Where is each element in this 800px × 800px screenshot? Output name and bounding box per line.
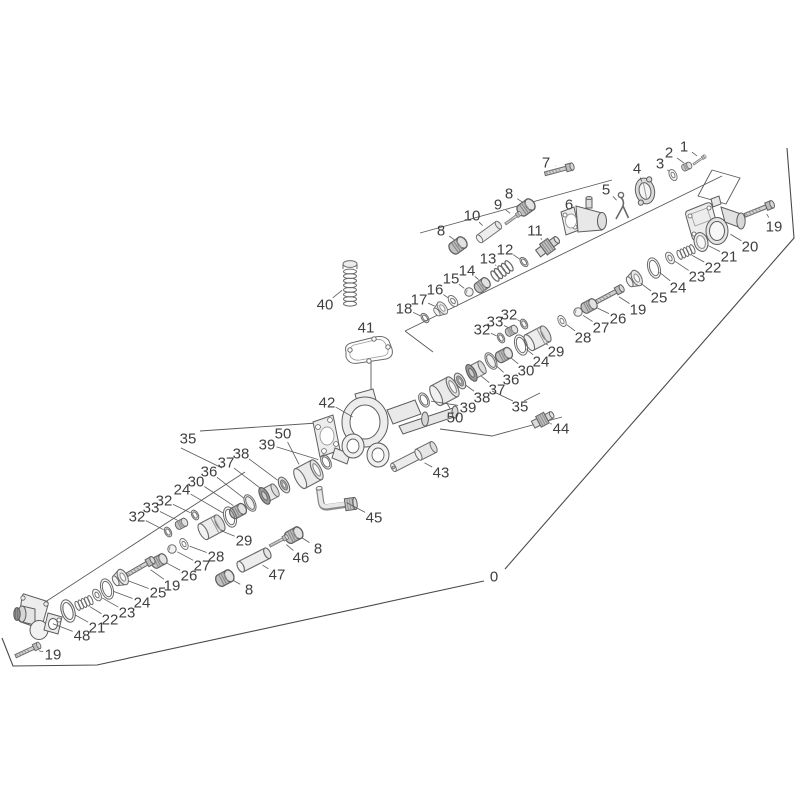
part-label-12: 12 — [497, 241, 514, 258]
part-47-glyph — [235, 547, 272, 574]
part-label-35: 35 — [180, 430, 197, 447]
part-label-24: 24 — [134, 594, 151, 611]
leader-line — [677, 158, 684, 163]
part-label-47: 47 — [269, 566, 286, 583]
part-label-19: 19 — [630, 301, 647, 318]
part-label-25: 25 — [150, 584, 167, 601]
part-label-41: 41 — [358, 319, 375, 336]
part-12-glyph — [518, 256, 529, 268]
part-19-glyph — [14, 642, 42, 660]
part-label-23: 23 — [119, 604, 136, 621]
diagram-labels-layer: 0422048671234519212223242519262728323332… — [39, 138, 783, 663]
part-label-21: 21 — [721, 248, 738, 265]
part-label-19: 19 — [766, 218, 783, 235]
part-label-30: 30 — [518, 362, 535, 379]
leader-line — [447, 403, 450, 409]
part-19-glyph — [594, 284, 625, 306]
part-label-32: 32 — [474, 321, 491, 338]
part-45-glyph — [316, 482, 358, 515]
part-label-50: 50 — [447, 409, 464, 426]
leader-line — [413, 312, 420, 316]
part-label-8: 8 — [314, 540, 322, 557]
part-label-42: 42 — [319, 394, 336, 411]
leader-line — [424, 463, 432, 467]
leader-line — [513, 255, 520, 260]
part-32-glyph — [163, 526, 174, 538]
leader-line — [177, 552, 193, 560]
part-label-7: 7 — [542, 154, 550, 171]
part-2-glyph — [681, 161, 693, 172]
part-3-glyph — [667, 168, 679, 182]
part-label-40: 40 — [317, 296, 334, 313]
part-label-25: 25 — [651, 289, 668, 306]
part-23-glyph — [664, 251, 677, 266]
part-label-24: 24 — [533, 353, 550, 370]
part-8-glyph — [447, 235, 469, 256]
construction-line — [200, 423, 317, 431]
leader-line — [263, 565, 269, 569]
leader-line — [491, 333, 496, 336]
leader-line — [146, 521, 164, 530]
leader-line — [233, 580, 240, 584]
part-1-glyph — [692, 154, 706, 166]
part-label-28: 28 — [575, 329, 592, 346]
leader-line — [517, 199, 522, 202]
part-27-glyph — [574, 308, 582, 316]
leader-line — [449, 236, 454, 240]
part-label-14: 14 — [459, 262, 476, 279]
part-label-9: 9 — [494, 196, 502, 213]
part-label-22: 22 — [705, 259, 722, 276]
leader-line — [234, 468, 261, 488]
leader-line — [659, 272, 670, 280]
part-label-3: 3 — [656, 155, 664, 172]
part-label-37: 37 — [218, 454, 235, 471]
part-label-11: 11 — [527, 222, 543, 239]
leader-line — [333, 290, 342, 298]
leader-line — [506, 210, 510, 213]
leader-line — [692, 152, 697, 156]
leader-line — [114, 591, 133, 598]
part-label-4: 4 — [633, 160, 641, 177]
part-22-glyph — [74, 595, 94, 611]
part-8-glyph — [214, 568, 236, 588]
part-40-glyph — [343, 261, 357, 307]
part-24-glyph — [645, 256, 663, 280]
leader-line — [517, 320, 520, 322]
part-4-glyph — [633, 176, 657, 206]
leader-line — [128, 581, 148, 589]
leader-line — [160, 511, 178, 520]
leader-line — [151, 570, 164, 580]
part-27-glyph — [168, 545, 176, 553]
construction-line — [405, 331, 433, 352]
part-29-glyph — [196, 513, 227, 541]
leader-line — [692, 255, 704, 262]
part-label-43: 43 — [433, 464, 450, 481]
leader-line — [597, 308, 609, 314]
leader-line — [459, 284, 464, 288]
part-label-23: 23 — [689, 268, 706, 285]
part-label-37: 37 — [489, 381, 506, 398]
part-label-18: 18 — [396, 300, 413, 317]
part-19-glyph — [743, 200, 775, 219]
diagram-parts-layer — [14, 154, 776, 659]
diagram-canvas: 0422048671234519212223242519262728323332… — [0, 0, 800, 800]
part-label-6: 6 — [565, 196, 573, 213]
part-28-glyph — [556, 314, 568, 328]
part-32-glyph — [496, 332, 507, 344]
part-label-26: 26 — [181, 567, 198, 584]
part-label-27: 27 — [593, 319, 610, 336]
part-label-50: 50 — [275, 425, 292, 442]
leader-line — [39, 651, 43, 652]
part-label-32: 32 — [129, 508, 146, 525]
part-label-10: 10 — [464, 207, 481, 224]
part-label-35: 35 — [512, 398, 529, 415]
part-39-glyph — [416, 391, 431, 409]
part-label-24: 24 — [174, 481, 191, 498]
part-label-29: 29 — [236, 532, 253, 549]
part-label-21: 21 — [89, 619, 106, 636]
part-25-glyph — [623, 268, 644, 290]
part-48-glyph — [14, 594, 62, 640]
part-label-45: 45 — [366, 509, 383, 526]
part-41-glyph — [346, 337, 393, 364]
part-label-44: 44 — [553, 420, 570, 437]
part-37-glyph — [256, 481, 281, 506]
part-50-glyph — [291, 458, 326, 490]
leader-line — [277, 447, 319, 460]
part-label-8: 8 — [505, 185, 513, 202]
assembly-boundary-outline — [2, 581, 484, 666]
leader-line — [619, 297, 630, 304]
part-label-39: 39 — [259, 436, 276, 453]
part-43-glyph — [389, 440, 439, 473]
part-33-glyph — [174, 517, 189, 530]
part-label-5: 5 — [602, 181, 610, 198]
part-label-29: 29 — [548, 343, 565, 360]
part-label-1: 1 — [680, 138, 688, 155]
leader-line — [708, 246, 720, 252]
part-22-glyph — [676, 244, 696, 260]
leader-line — [75, 615, 88, 622]
part-5-glyph — [616, 192, 629, 219]
leader-line — [443, 295, 448, 298]
leader-line — [730, 234, 741, 241]
leader-line — [190, 546, 207, 552]
part-label-26: 26 — [610, 310, 627, 327]
leader-line — [641, 283, 651, 291]
leader-line — [613, 196, 617, 200]
part-17-glyph — [431, 300, 450, 319]
leader-line — [302, 538, 310, 543]
part-14-glyph — [472, 276, 492, 294]
leader-line — [90, 607, 102, 614]
leader-line — [221, 531, 234, 536]
part-18-glyph — [419, 312, 430, 324]
part-label-16: 16 — [427, 281, 444, 298]
part-label-0: 0 — [490, 568, 498, 585]
part-label-20: 20 — [742, 238, 759, 255]
leader-line — [767, 214, 769, 217]
part-label-8: 8 — [437, 222, 445, 239]
part-label-13: 13 — [480, 250, 497, 267]
leader-line — [550, 423, 551, 424]
part-19-glyph — [125, 556, 156, 578]
leader-line — [583, 315, 593, 321]
leader-line — [675, 261, 689, 270]
part-16-glyph — [446, 294, 460, 309]
leader-line — [173, 504, 190, 512]
part-9-glyph — [504, 211, 522, 226]
part-label-15: 15 — [443, 270, 460, 287]
exploded-parts-diagram: 0422048671234519212223242519262728323332… — [0, 0, 800, 800]
part-28-glyph — [178, 537, 190, 551]
leader-line — [167, 563, 180, 570]
part-32-glyph — [519, 318, 530, 330]
part-label-17: 17 — [411, 291, 428, 308]
part-label-2: 2 — [665, 144, 673, 161]
leader-line — [249, 459, 278, 480]
part-label-8: 8 — [245, 581, 253, 598]
part-label-38: 38 — [233, 445, 250, 462]
part-32-glyph — [190, 509, 201, 521]
part-label-19: 19 — [45, 646, 62, 663]
part-label-24: 24 — [670, 279, 687, 296]
leader-line — [504, 325, 509, 327]
leader-line — [428, 303, 435, 306]
part-label-46: 46 — [293, 549, 310, 566]
part-15-glyph — [465, 288, 473, 296]
